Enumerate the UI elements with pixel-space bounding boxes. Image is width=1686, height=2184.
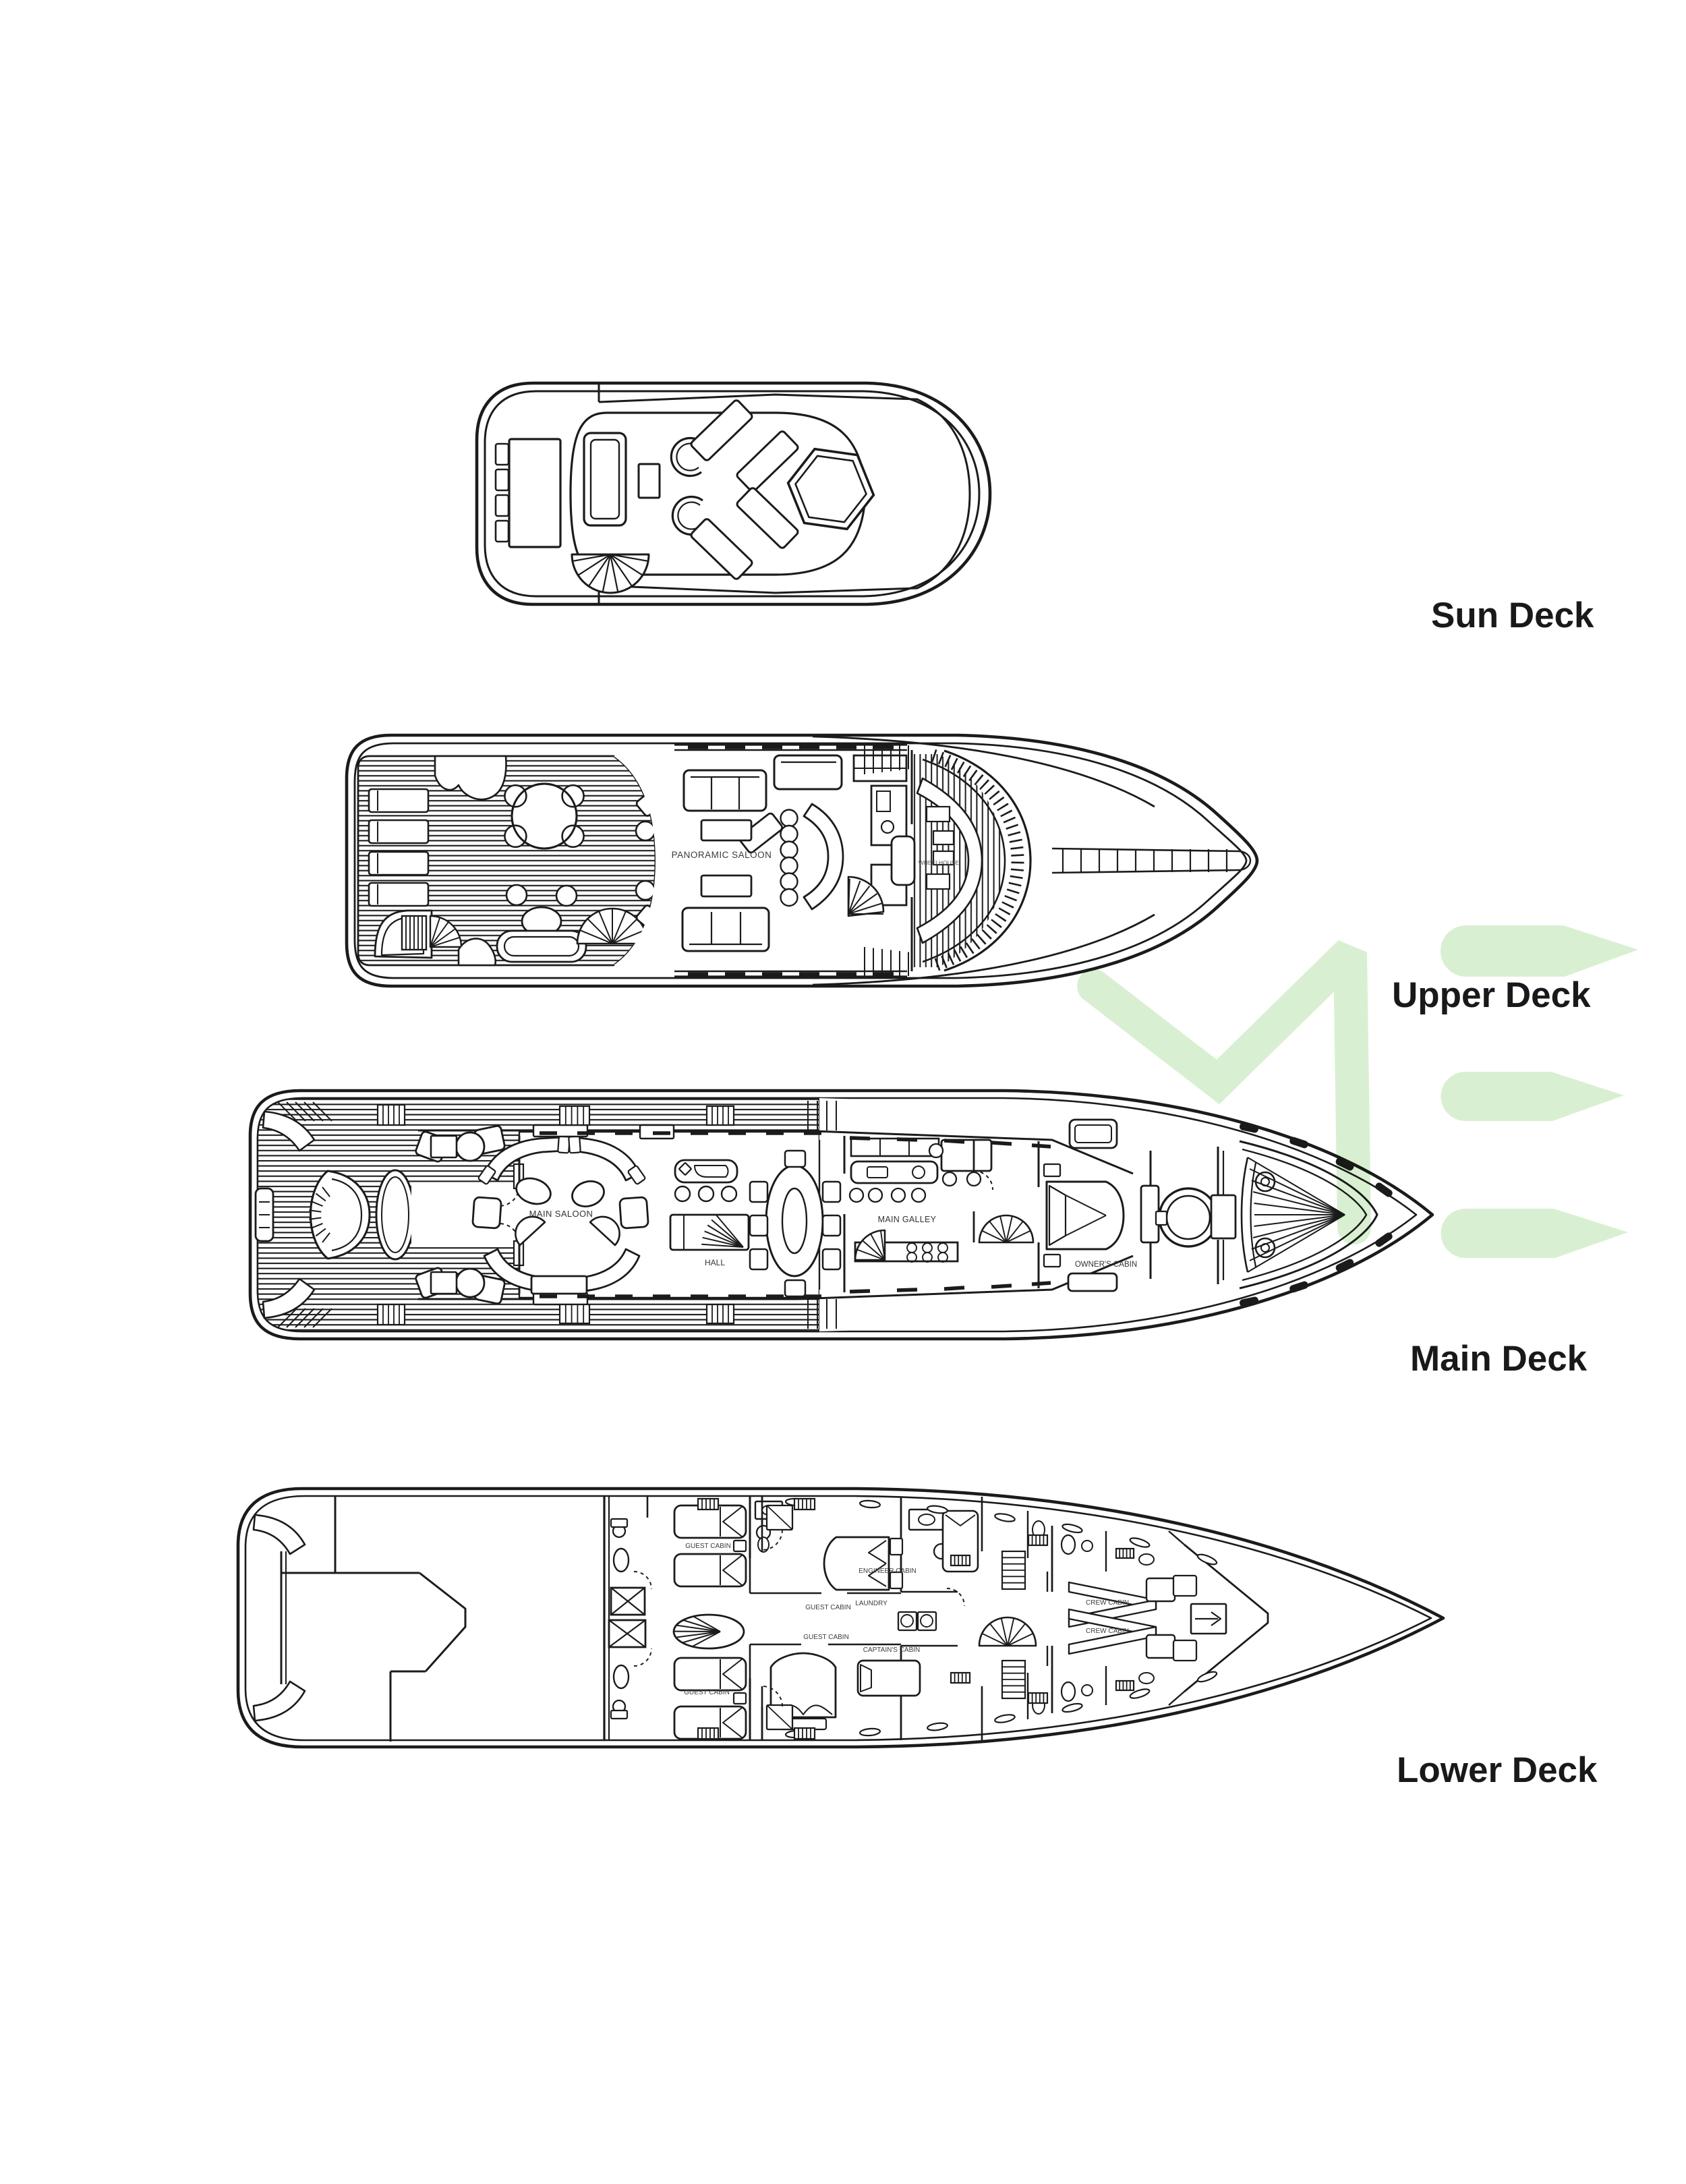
svg-text:CAPTAIN'S CABIN: CAPTAIN'S CABIN bbox=[863, 1646, 921, 1654]
svg-text:ENGINEER CABIN: ENGINEER CABIN bbox=[859, 1568, 917, 1575]
svg-text:Upper Deck: Upper Deck bbox=[1392, 975, 1591, 1015]
svg-text:LAUNDRY: LAUNDRY bbox=[855, 1600, 888, 1607]
svg-text:WHEELHOUSE: WHEELHOUSE bbox=[919, 859, 960, 866]
svg-text:MAIN GALLEY: MAIN GALLEY bbox=[878, 1215, 937, 1224]
svg-text:Main Deck: Main Deck bbox=[1410, 1339, 1588, 1379]
svg-text:GUEST CABIN: GUEST CABIN bbox=[805, 1604, 851, 1611]
svg-text:HALL: HALL bbox=[705, 1258, 725, 1267]
svg-text:GUEST CABIN: GUEST CABIN bbox=[685, 1543, 731, 1550]
svg-text:PANORAMIC SALOON: PANORAMIC SALOON bbox=[672, 850, 772, 860]
svg-text:GUEST CABIN: GUEST CABIN bbox=[684, 1689, 730, 1696]
svg-text:OWNER'S CABIN: OWNER'S CABIN bbox=[1075, 1261, 1137, 1269]
svg-text:CREW CABIN: CREW CABIN bbox=[1086, 1628, 1129, 1635]
svg-text:CREW CABIN: CREW CABIN bbox=[1086, 1599, 1129, 1607]
svg-text:MAIN SALOON: MAIN SALOON bbox=[529, 1209, 593, 1219]
svg-text:GUEST CABIN: GUEST CABIN bbox=[803, 1634, 849, 1641]
svg-text:Lower Deck: Lower Deck bbox=[1397, 1750, 1598, 1790]
svg-text:Sun Deck: Sun Deck bbox=[1431, 596, 1594, 635]
